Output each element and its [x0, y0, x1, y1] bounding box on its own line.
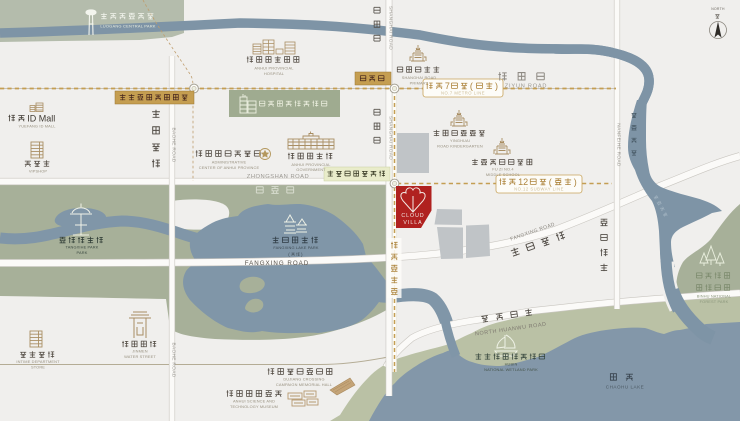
svg-text:PARK: PARK — [77, 250, 88, 255]
svg-text:BAOHE ROAD: BAOHE ROAD — [170, 343, 176, 378]
svg-text:ANHUI SCIENCE AND: ANHUI SCIENCE AND — [233, 399, 275, 404]
svg-text:INTIME DEPARTMENT: INTIME DEPARTMENT — [16, 359, 60, 364]
svg-text:CHAOHU LAKE: CHAOHU LAKE — [606, 385, 644, 390]
svg-text:NO.7 METRO LINE: NO.7 METRO LINE — [441, 91, 485, 96]
svg-text:): ) — [495, 81, 498, 91]
svg-text:PRIMARY: PRIMARY — [410, 81, 429, 86]
svg-text:HUBIN: HUBIN — [505, 362, 518, 367]
svg-text:ADMINISTRATIVE: ADMINISTRATIVE — [212, 160, 247, 165]
svg-text:WATER STREET: WATER STREET — [124, 354, 156, 359]
svg-text:JINMEN: JINMEN — [132, 349, 147, 354]
svg-text:YUEFANG ID MALL: YUEFANG ID MALL — [18, 124, 56, 129]
svg-text:LUOGANG CENTRAL PARK: LUOGANG CENTRAL PARK — [100, 24, 155, 29]
svg-text:ZIYUN ROAD: ZIYUN ROAD — [505, 84, 548, 90]
svg-text:MIDDLE SCHOOL: MIDDLE SCHOOL — [486, 172, 521, 177]
svg-text:BAOHE ROAD: BAOHE ROAD — [170, 128, 176, 163]
svg-text:ZHONGSHAN ROAD: ZHONGSHAN ROAD — [247, 174, 309, 180]
svg-text:FU ZI NO.4: FU ZI NO.4 — [492, 167, 514, 172]
svg-text:HOSPITAL: HOSPITAL — [264, 71, 285, 76]
svg-text:NATIONAL WETLAND PARK: NATIONAL WETLAND PARK — [484, 367, 538, 372]
svg-text:NORTH: NORTH — [711, 7, 725, 11]
svg-text:NANFEIHE ROAD: NANFEIHE ROAD — [615, 123, 621, 167]
svg-text:TECHNOLOGY MUSEUM: TECHNOLOGY MUSEUM — [230, 404, 278, 409]
svg-text:STORE: STORE — [31, 364, 45, 369]
svg-text:CLOUD: CLOUD — [401, 213, 424, 219]
svg-text:YINGHUAI: YINGHUAI — [450, 138, 470, 143]
svg-text:NO.12 SUBWAY LINE: NO.12 SUBWAY LINE — [514, 187, 564, 192]
svg-text:SHANGHAI ROAD: SHANGHAI ROAD — [387, 116, 393, 160]
svg-text:): ) — [574, 177, 577, 187]
svg-text:BINHU NATIONAL: BINHU NATIONAL — [697, 294, 732, 299]
svg-text:VILLA: VILLA — [403, 220, 422, 226]
svg-text:ROAD KINDERGARTEN: ROAD KINDERGARTEN — [437, 144, 483, 149]
svg-text:CAMPAIGN MEMORIAL HALL: CAMPAIGN MEMORIAL HALL — [276, 382, 333, 387]
svg-text:ANHUI PROVINCIAL: ANHUI PROVINCIAL — [254, 66, 294, 71]
svg-text:FANGXING ROAD: FANGXING ROAD — [245, 260, 310, 267]
svg-text:CENTER OF ANHUI PROVINCE: CENTER OF ANHUI PROVINCE — [199, 165, 260, 170]
svg-text:GOVERNMENT: GOVERNMENT — [296, 167, 326, 172]
svg-text:VIPSHOP: VIPSHOP — [29, 169, 48, 174]
svg-text:FANGXING LAKE PARK: FANGXING LAKE PARK — [273, 245, 318, 250]
svg-text:DUJIANG CROSSING: DUJIANG CROSSING — [283, 377, 324, 382]
svg-text:ID Mall: ID Mall — [27, 113, 55, 123]
svg-text:TANGXIHE PARK: TANGXIHE PARK — [66, 245, 99, 250]
svg-text:FOREST PARK: FOREST PARK — [700, 299, 729, 304]
svg-text:SHANGHAI ROAD: SHANGHAI ROAD — [402, 75, 437, 80]
svg-text:SHANGHAI ROAD: SHANGHAI ROAD — [387, 6, 393, 50]
